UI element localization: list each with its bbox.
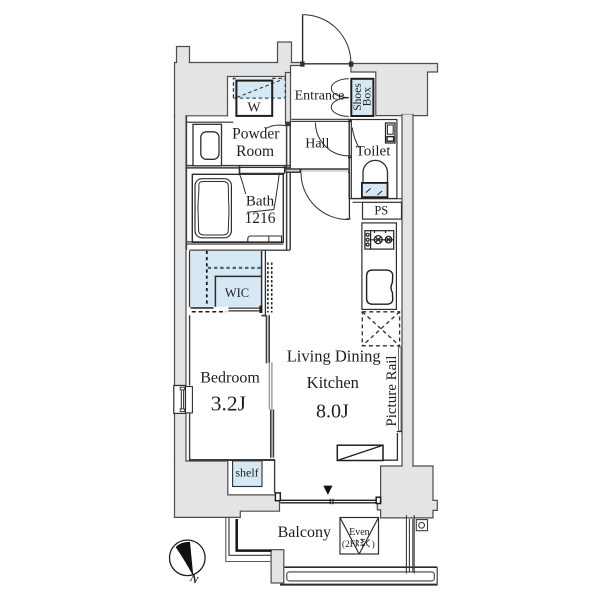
svg-text:shelf: shelf — [235, 465, 258, 479]
svg-text:(2F: (2F — [342, 539, 355, 550]
svg-text:Balcony: Balcony — [278, 524, 331, 541]
svg-text:Toilet: Toilet — [356, 144, 392, 160]
svg-text:Bedroom: Bedroom — [200, 370, 260, 387]
svg-text:PS: PS — [374, 204, 388, 218]
svg-text:Room: Room — [236, 143, 274, 160]
svg-text:Bath: Bath — [246, 194, 275, 210]
svg-text:WIC: WIC — [225, 286, 249, 300]
svg-text:3.2J: 3.2J — [211, 391, 246, 415]
svg-text:Picture Rail: Picture Rail — [384, 355, 400, 426]
svg-text:Box: Box — [362, 87, 374, 106]
svg-text:8.0J: 8.0J — [316, 401, 349, 423]
svg-text:W: W — [247, 101, 261, 116]
svg-text:Powder: Powder — [232, 126, 280, 143]
svg-text:Kitchen: Kitchen — [307, 373, 359, 392]
svg-text:): ) — [372, 539, 375, 550]
svg-text:Entrance: Entrance — [295, 88, 345, 103]
svg-text:Even: Even — [349, 527, 370, 538]
svg-text:1216: 1216 — [245, 210, 276, 227]
svg-text:Hall: Hall — [305, 136, 329, 151]
svg-text:Living Dining: Living Dining — [287, 347, 381, 366]
